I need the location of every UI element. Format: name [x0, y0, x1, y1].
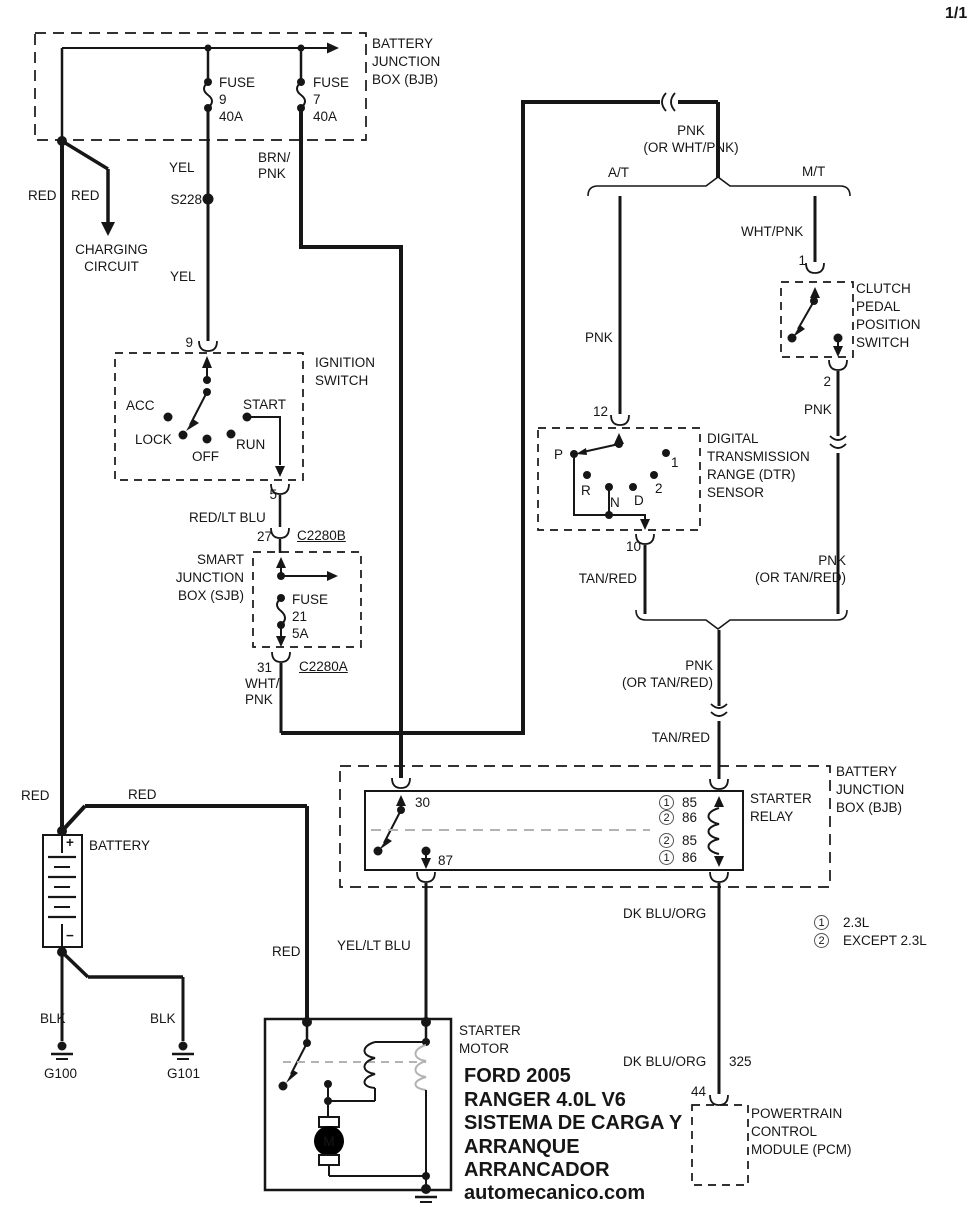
legend-circ-1: 1	[814, 915, 829, 930]
motor-m-symbol: M	[321, 1133, 337, 1151]
legend-text-1: 2.3L	[843, 914, 869, 932]
pcm-pin-44: 44	[684, 1083, 706, 1101]
connector-c2280b: C2280B	[297, 527, 346, 545]
ignition-pin-9: 9	[173, 334, 193, 352]
wire-pnk-or-wht-pnk: PNK (OR WHT/PNK)	[631, 122, 751, 156]
dtr-pos-n: N	[610, 494, 620, 512]
wire-yel-lower: YEL	[170, 268, 196, 286]
pcm-graphic	[692, 1095, 748, 1185]
dtr-pos-d: D	[634, 492, 644, 510]
footer-site: automecanico.com	[464, 1181, 645, 1205]
dtr-pin-10: 10	[619, 538, 641, 556]
wire-red-charging: RED	[71, 187, 100, 205]
ignition-pin-5: 5	[257, 486, 277, 504]
relay-row-pin-86b: 86	[682, 849, 697, 867]
wiring-diagram-page: 1/1 BATTERY JUNCTION BOX (BJB) FUSE 9 40…	[0, 0, 979, 1206]
wire-blk-g101: BLK	[150, 1010, 176, 1028]
dtr-pos-p: P	[554, 446, 563, 464]
footer-system-3: ARRANCADOR	[464, 1158, 610, 1182]
wire-red-lt-blu: RED/LT BLU	[189, 509, 266, 527]
footer-system-2: ARRANQUE	[464, 1135, 580, 1159]
battery-minus: −	[66, 927, 74, 945]
ignition-off: OFF	[192, 448, 219, 466]
wire-tan-red-merge: TAN/RED	[610, 729, 710, 747]
wire-blk-g100: BLK	[40, 1010, 66, 1028]
pnk-feed-wire-graphic	[281, 93, 718, 733]
page-number: 1/1	[945, 5, 967, 23]
wire-red-to-starter: RED	[272, 943, 301, 961]
merge-wire-graphic	[636, 610, 847, 789]
brn-pnk-wire-graphic	[301, 108, 410, 788]
sjb-title: SMART JUNCTION BOX (SJB)	[138, 551, 244, 605]
ground-g100: G100	[44, 1065, 77, 1083]
wire-yel-upper: YEL	[169, 159, 195, 177]
relay-pin-87: 87	[438, 852, 453, 870]
wire-yel-lt-blu: YEL/LT BLU	[337, 937, 411, 955]
ignition-title: IGNITION SWITCH	[315, 354, 375, 390]
battery-label: BATTERY	[89, 837, 150, 855]
charging-circuit-label: CHARGING CIRCUIT	[64, 241, 159, 275]
circuit-number-325: 325	[729, 1053, 752, 1071]
connector-c2280a-pin: 31	[244, 659, 272, 677]
pcm-title: POWERTRAIN CONTROL MODULE (PCM)	[751, 1105, 852, 1159]
ignition-run: RUN	[236, 436, 265, 454]
bjb-top-title: BATTERY JUNCTION BOX (BJB)	[372, 35, 440, 89]
wire-red-battery-top: RED	[128, 786, 157, 804]
wire-dk-blu-org-upper: DK BLU/ORG	[623, 905, 706, 923]
dtr-pos-2: 2	[655, 480, 663, 498]
fuse7-label: FUSE 7 40A	[313, 74, 349, 125]
ignition-start: START	[243, 396, 286, 414]
wire-red-battery-left: RED	[21, 787, 50, 805]
wire-red-left: RED	[28, 187, 57, 205]
relay-row-circ-1: 1	[659, 795, 674, 810]
bjb-lower-title: BATTERY JUNCTION BOX (BJB)	[836, 763, 904, 817]
relay-pin-30: 30	[415, 794, 430, 812]
starter-relay-title: STARTER RELAY	[750, 790, 812, 826]
relay-row-circ-2: 2	[659, 810, 674, 825]
battery-plus: +	[66, 834, 74, 852]
footer-system-1: SISTEMA DE CARGA Y	[464, 1111, 682, 1135]
ignition-lock: LOCK	[135, 431, 172, 449]
fuse21-label: FUSE 21 5A	[292, 591, 328, 642]
wire-pnk-or-tan-red-right: PNK (OR TAN/RED)	[726, 552, 846, 586]
clutch-pin-1: 1	[786, 252, 806, 270]
wire-pnk-mt: PNK	[804, 401, 832, 419]
dtr-title: DIGITAL TRANSMISSION RANGE (DTR) SENSOR	[707, 430, 810, 502]
clutch-pin-2: 2	[811, 373, 831, 391]
dtr-pos-1: 1	[671, 454, 679, 472]
ignition-acc: ACC	[126, 397, 155, 415]
legend-text-2: EXCEPT 2.3L	[843, 932, 927, 950]
footer-model: RANGER 4.0L V6	[464, 1088, 626, 1112]
connector-c2280a: C2280A	[299, 658, 348, 676]
wire-tan-red-at: TAN/RED	[557, 570, 637, 588]
relay-row-circ-3: 2	[659, 833, 674, 848]
clutch-title: CLUTCH PEDAL POSITION SWITCH	[856, 280, 921, 352]
relay-row-pin-86a: 86	[682, 809, 697, 827]
wire-dk-blu-org-lower: DK BLU/ORG	[623, 1053, 706, 1071]
relay-row-circ-4: 1	[659, 850, 674, 865]
legend-circ-2: 2	[814, 933, 829, 948]
yel-wire-graphic	[199, 108, 217, 351]
footer-make: FORD 2005	[464, 1064, 571, 1088]
relay-row-pin-85b: 85	[682, 832, 697, 850]
branch-mt: M/T	[802, 163, 825, 181]
starter-motor-title: STARTER MOTOR	[459, 1022, 521, 1058]
wire-pnk-at: PNK	[585, 329, 613, 347]
dtr-pos-r: R	[581, 482, 591, 500]
ground-g101: G101	[167, 1065, 200, 1083]
wire-wht-pnk-sjb: WHT/ PNK	[245, 676, 280, 708]
branch-at: A/T	[608, 164, 629, 182]
wire-pnk-or-tan-red-merge: PNK (OR TAN/RED)	[593, 657, 713, 691]
starter-motor-graphic	[265, 1017, 451, 1202]
dtr-pin-12: 12	[586, 403, 608, 421]
fuse9-label: FUSE 9 40A	[219, 74, 255, 125]
splice-s228: S228	[158, 191, 202, 209]
connector-c2280b-pin: 27	[244, 528, 272, 546]
wire-wht-pnk-mt: WHT/PNK	[741, 223, 803, 241]
wire-brn-pnk: BRN/ PNK	[258, 150, 290, 182]
